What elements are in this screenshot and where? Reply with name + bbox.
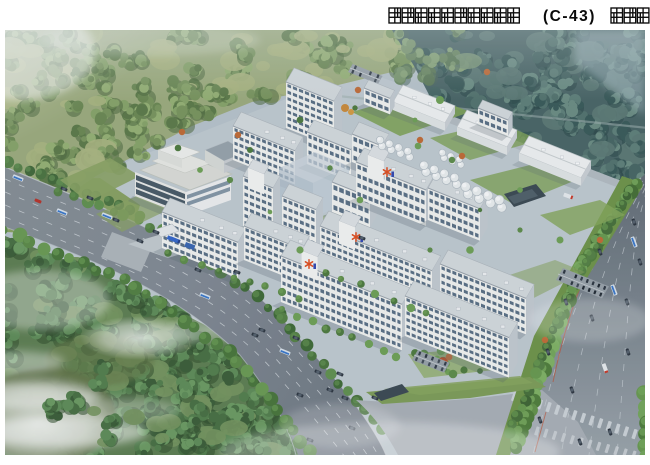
svg-text:(C-43): (C-43) bbox=[543, 8, 596, 25]
